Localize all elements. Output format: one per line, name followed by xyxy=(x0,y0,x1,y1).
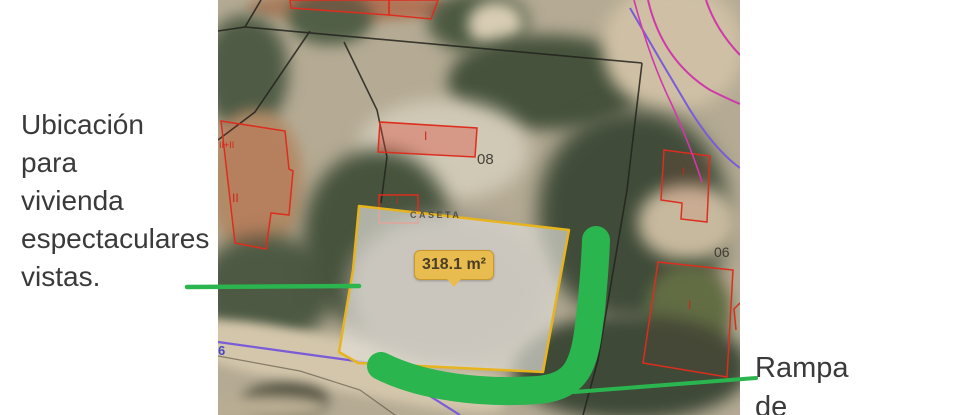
left-annotation-line: vistas. xyxy=(21,258,221,296)
floors-label: I xyxy=(396,196,399,206)
left-annotation: Ubicación para vivienda espectaculares v… xyxy=(21,106,221,296)
area-tooltip-value: 318.1 m² xyxy=(422,256,486,274)
left-annotation-line: espectaculares xyxy=(21,220,221,258)
right-annotation-line: Rampa xyxy=(755,349,955,388)
left-annotation-line: Ubicación xyxy=(21,106,221,144)
right-annotation-line: de xyxy=(755,388,955,415)
aerial-photo: CASETA 08 06 6 II+II II I I I I 318.1 m² xyxy=(218,0,740,415)
floors-label: II xyxy=(232,191,239,205)
left-annotation-line: para xyxy=(21,144,221,182)
right-annotation: Rampa de xyxy=(755,349,955,415)
caseta-label: CASETA xyxy=(410,210,461,220)
parcel-number-08: 08 xyxy=(477,151,494,168)
left-annotation-line: vivienda xyxy=(21,182,221,220)
parcel-number-06: 06 xyxy=(714,244,730,260)
road-number-label: 6 xyxy=(218,343,225,358)
area-tooltip: 318.1 m² xyxy=(414,250,494,280)
floors-label: I xyxy=(688,298,691,312)
floors-label: I xyxy=(682,166,685,178)
floors-label: I xyxy=(424,129,427,143)
highlighted-parcel xyxy=(339,206,569,372)
listing-annotated-image: Ubicación para vivienda espectaculares v… xyxy=(0,0,960,415)
cadastral-overlay xyxy=(218,0,740,415)
floors-label: II+II xyxy=(219,140,234,150)
